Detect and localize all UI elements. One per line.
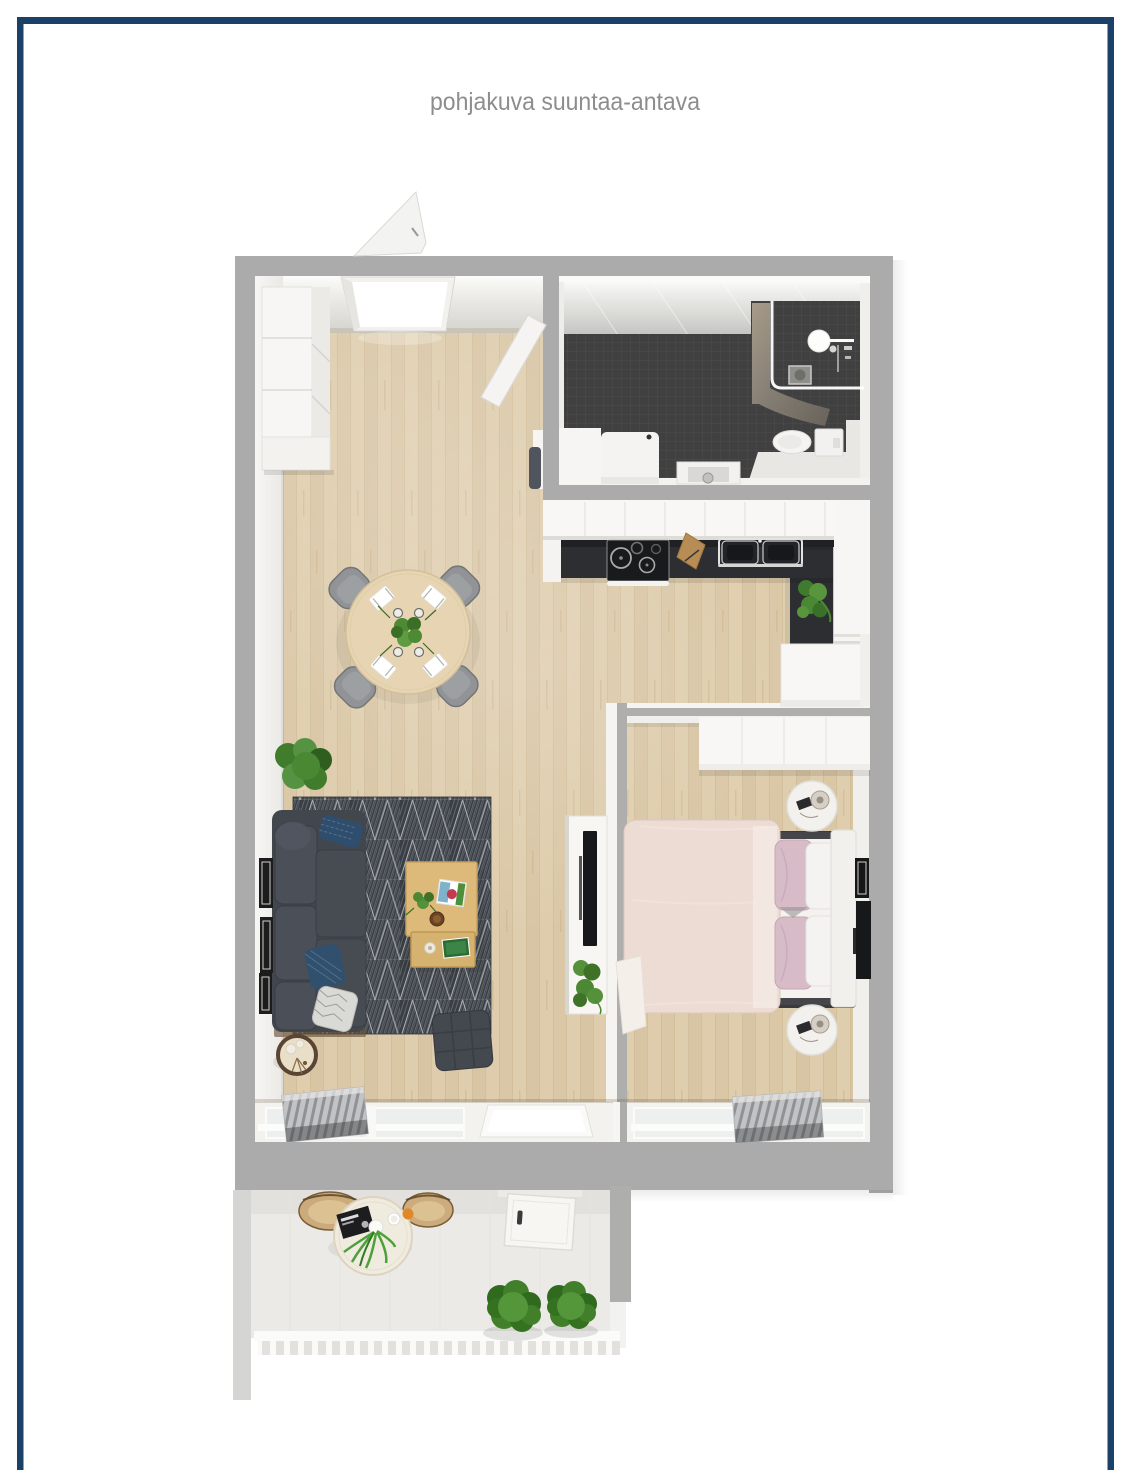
svg-text:pohjakuva suuntaa-antava: pohjakuva suuntaa-antava [430, 88, 700, 116]
